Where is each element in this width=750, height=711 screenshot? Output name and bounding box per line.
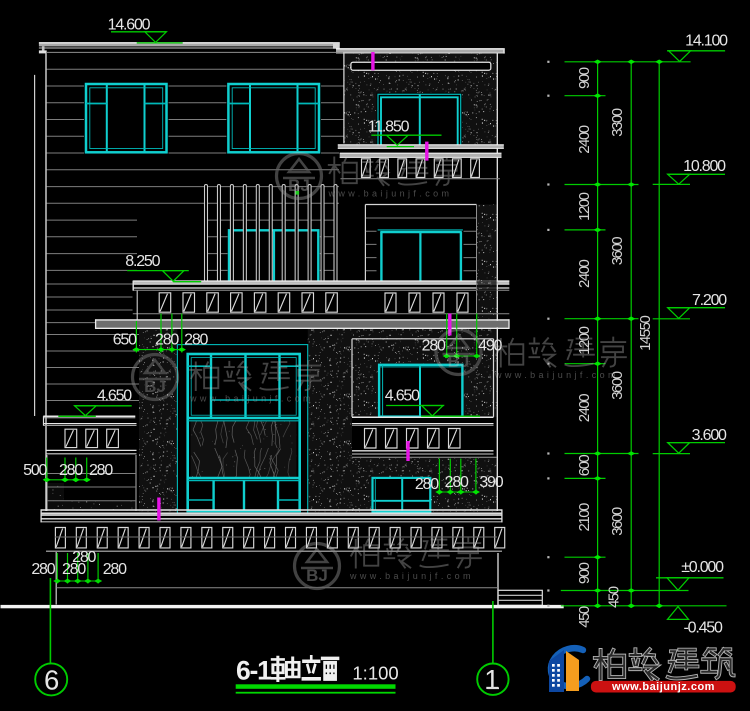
svg-text:280: 280 <box>89 462 113 479</box>
svg-text:3600: 3600 <box>609 237 626 266</box>
svg-text:BJ: BJ <box>448 352 470 371</box>
svg-text:www.baijunjf.com: www.baijunjf.com <box>349 571 474 581</box>
svg-text:BJ: BJ <box>306 566 328 585</box>
svg-text:4.650: 4.650 <box>385 388 420 405</box>
svg-text:-0.450: -0.450 <box>684 619 723 636</box>
svg-text:6-1: 6-1 <box>236 656 271 686</box>
svg-text:2400: 2400 <box>576 259 593 288</box>
svg-text:BJ: BJ <box>288 176 310 195</box>
svg-text:900: 900 <box>576 67 593 89</box>
svg-text:www.baijunjz.com: www.baijunjz.com <box>611 681 715 693</box>
svg-text:6: 6 <box>44 664 59 695</box>
svg-text:7.200: 7.200 <box>692 292 727 309</box>
svg-text:2400: 2400 <box>576 125 593 154</box>
svg-text:4.650: 4.650 <box>97 388 132 405</box>
svg-text:280: 280 <box>155 332 179 349</box>
svg-text:2100: 2100 <box>576 503 593 532</box>
svg-text:280: 280 <box>31 561 55 578</box>
svg-text:3600: 3600 <box>609 507 626 536</box>
svg-text:500: 500 <box>23 462 47 479</box>
svg-text:450: 450 <box>606 586 623 608</box>
svg-text:280: 280 <box>415 476 439 493</box>
svg-text:650: 650 <box>113 332 137 349</box>
svg-text:390: 390 <box>479 474 503 491</box>
svg-text:3300: 3300 <box>609 108 626 137</box>
svg-text:450: 450 <box>576 606 593 628</box>
svg-text:1200: 1200 <box>576 192 593 221</box>
svg-text:3.600: 3.600 <box>692 427 727 444</box>
svg-text:1200: 1200 <box>576 326 593 355</box>
svg-text:14.100: 14.100 <box>685 33 728 50</box>
svg-text:280: 280 <box>103 561 127 578</box>
svg-text:1:100: 1:100 <box>352 663 398 684</box>
svg-text:www.baijunjf.com: www.baijunjf.com <box>328 189 453 199</box>
svg-text:8.250: 8.250 <box>125 253 160 270</box>
svg-text:2400: 2400 <box>576 394 593 423</box>
svg-text:www.baijunjf.com: www.baijunjf.com <box>494 370 619 380</box>
svg-text:280: 280 <box>59 462 83 479</box>
svg-text:900: 900 <box>576 562 593 584</box>
svg-text:280: 280 <box>184 332 208 349</box>
svg-text:600: 600 <box>576 455 593 477</box>
svg-text:280: 280 <box>62 561 86 578</box>
svg-text:1: 1 <box>484 664 499 695</box>
svg-text:280: 280 <box>445 474 469 491</box>
svg-text:11.850: 11.850 <box>368 119 410 136</box>
svg-text:14550: 14550 <box>637 316 654 351</box>
svg-text:±0.000: ±0.000 <box>681 559 724 576</box>
svg-text:14.600: 14.600 <box>108 17 151 34</box>
svg-text:280: 280 <box>422 337 446 354</box>
svg-text:www.baijunjf.com: www.baijunjf.com <box>189 394 314 404</box>
svg-text:10.800: 10.800 <box>683 158 726 175</box>
svg-text:BJ: BJ <box>144 377 166 396</box>
